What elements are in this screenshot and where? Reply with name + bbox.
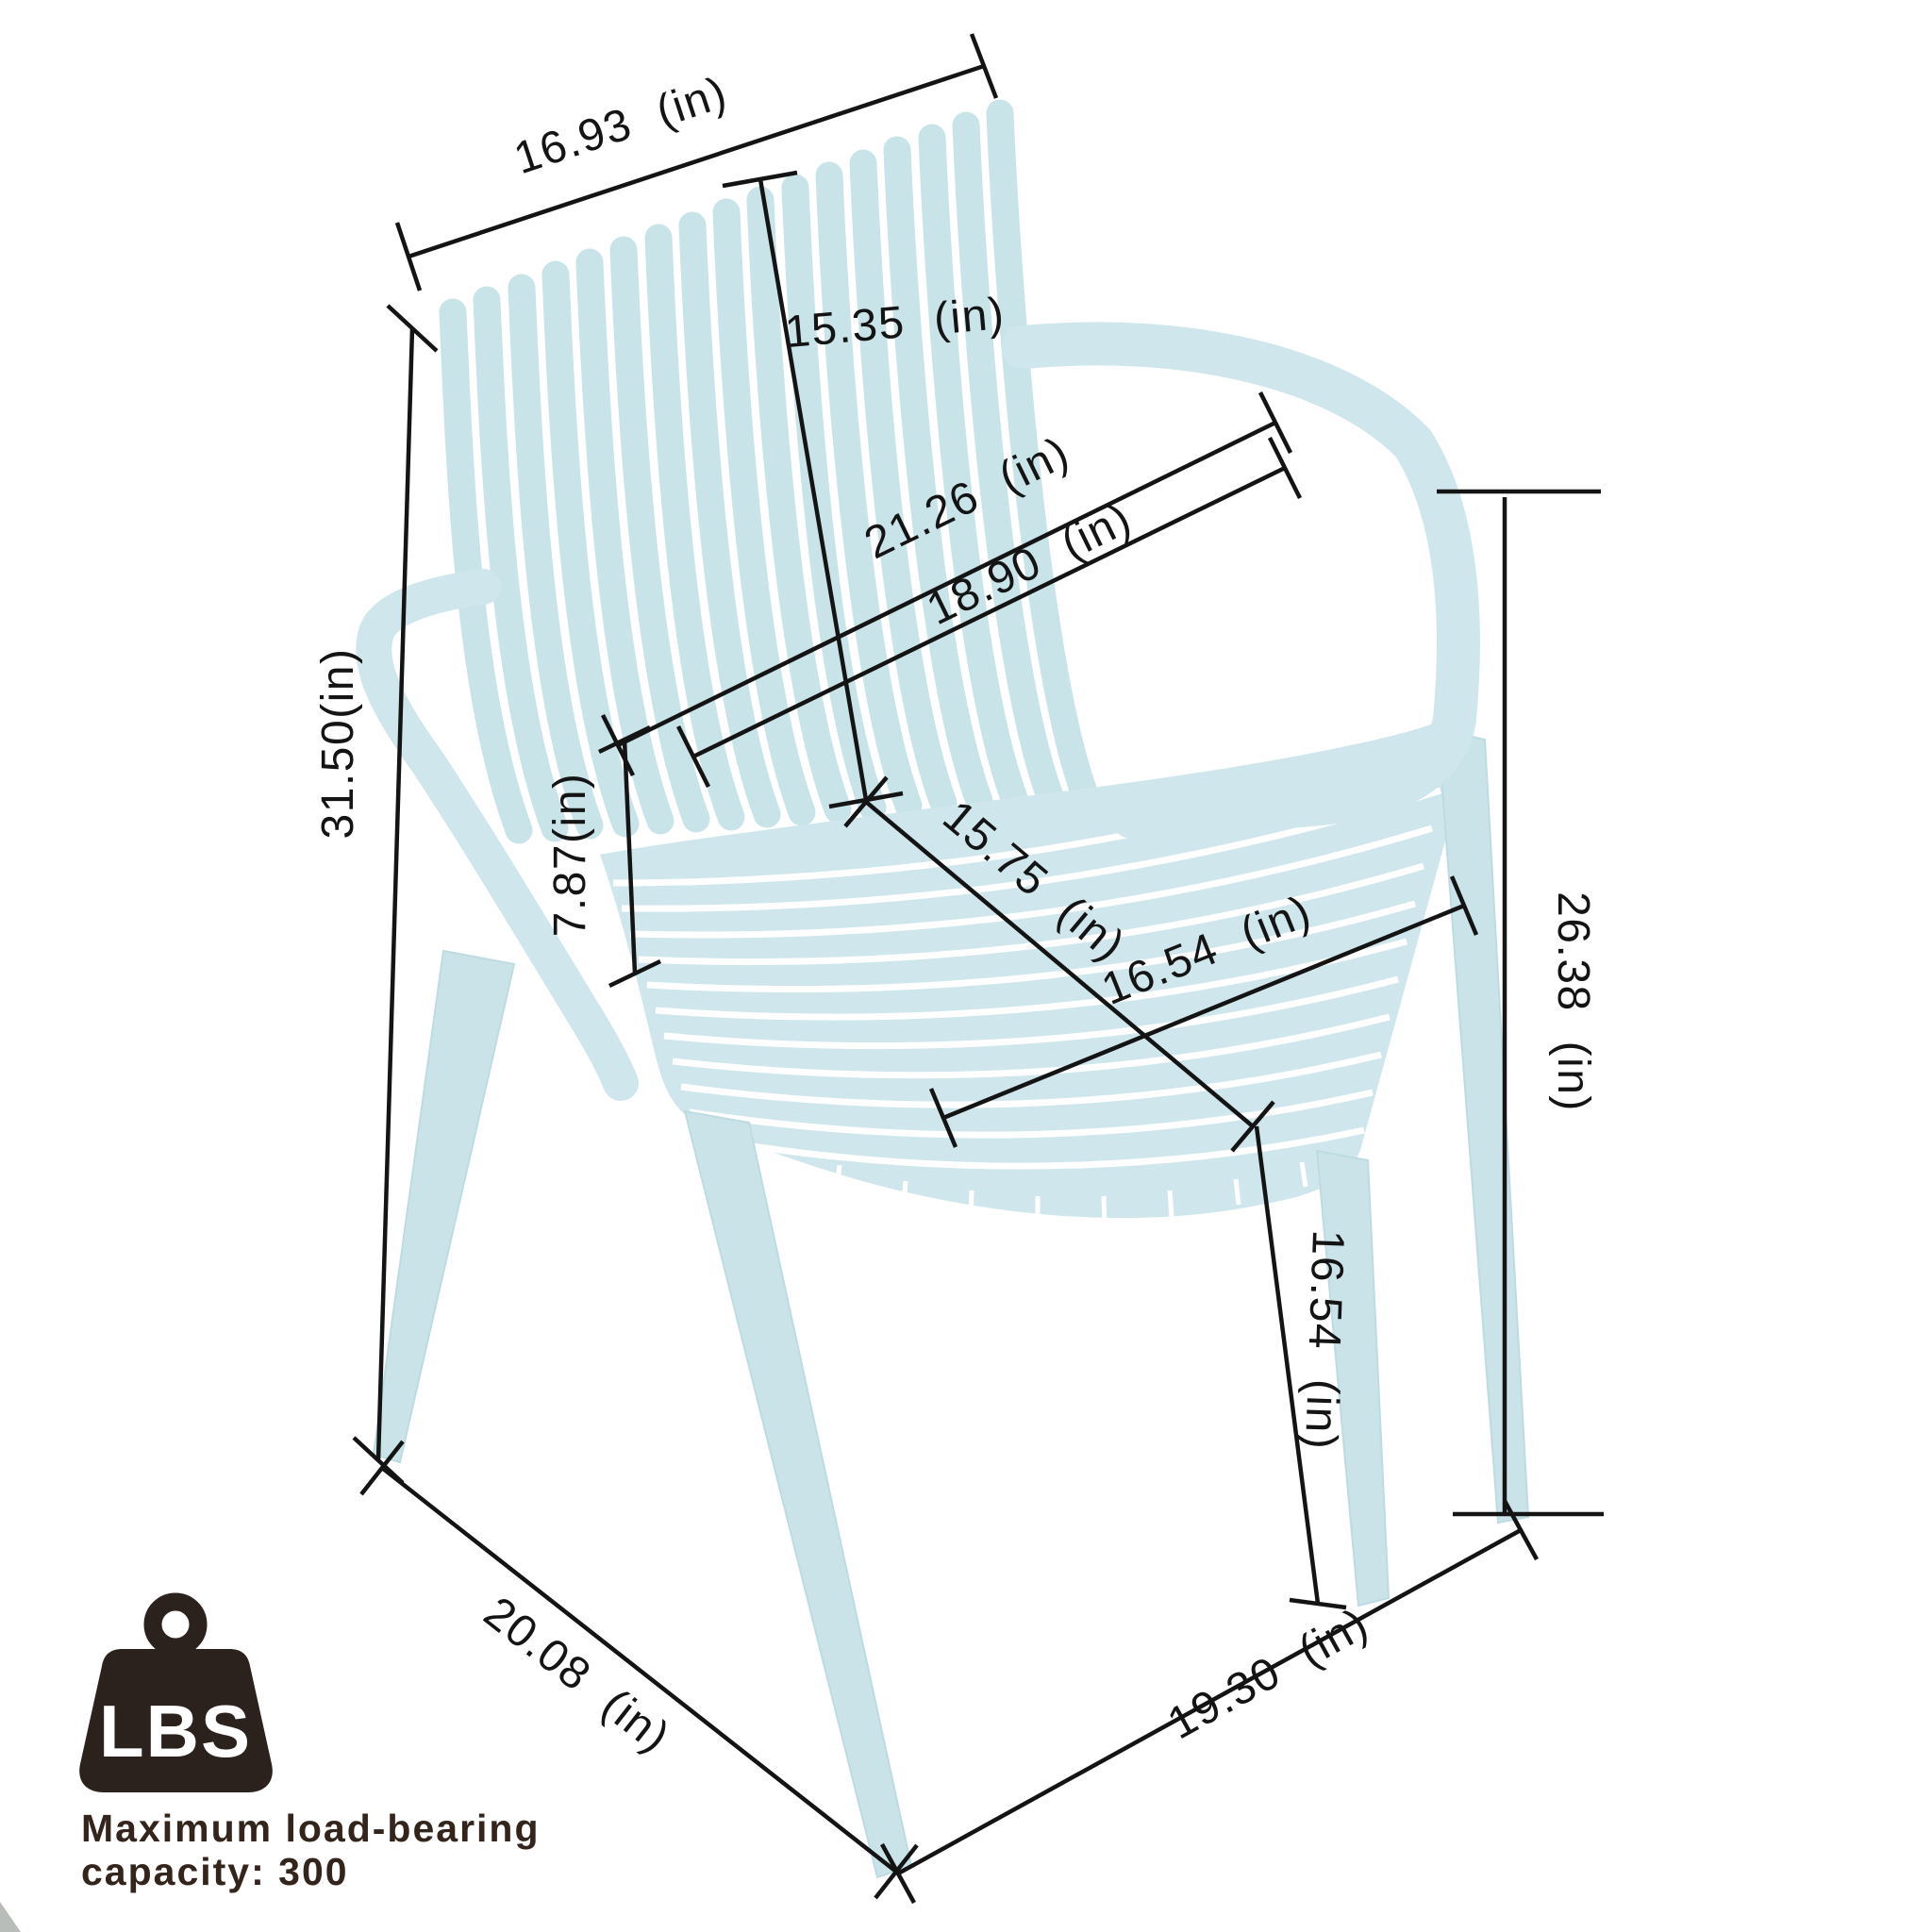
weight-unit-label: LBS [99,1690,252,1773]
weight-ring-icon [153,1602,198,1647]
corner-artifact [0,1902,21,1932]
chair-leg-front [685,1111,911,1877]
dim-base-width-label: 19.30 (in) [1159,1599,1376,1750]
dim-armrest-to-floor-label: 26.38 (in) [1548,891,1598,1112]
product-dimension-page: 16.93 (in) 15.35 (in) 21.26 (in) 18.90 (… [0,0,1932,1932]
load-note-line1: Maximum load-bearing [81,1807,541,1850]
load-capacity-badge: LBS Maximum load-bearing capacity: 300 [79,1602,540,1893]
chair-leg-back-left [374,951,514,1462]
product-dimension-diagram: 16.93 (in) 15.35 (in) 21.26 (in) 18.90 (… [0,0,1932,1932]
dim-base-width: 19.30 (in) [882,1501,1537,1903]
chair-leg-back-right [1438,728,1528,1523]
dim-seat-height-label: 16.54 (in) [1295,1229,1353,1451]
dim-overall-height-label: 31.50(in) [313,648,363,840]
dim-back-width-label: 16.93 (in) [508,67,734,184]
load-note-line2: capacity: 300 [81,1850,349,1893]
dim-armrest-height-label: 7.87(in) [545,773,595,938]
